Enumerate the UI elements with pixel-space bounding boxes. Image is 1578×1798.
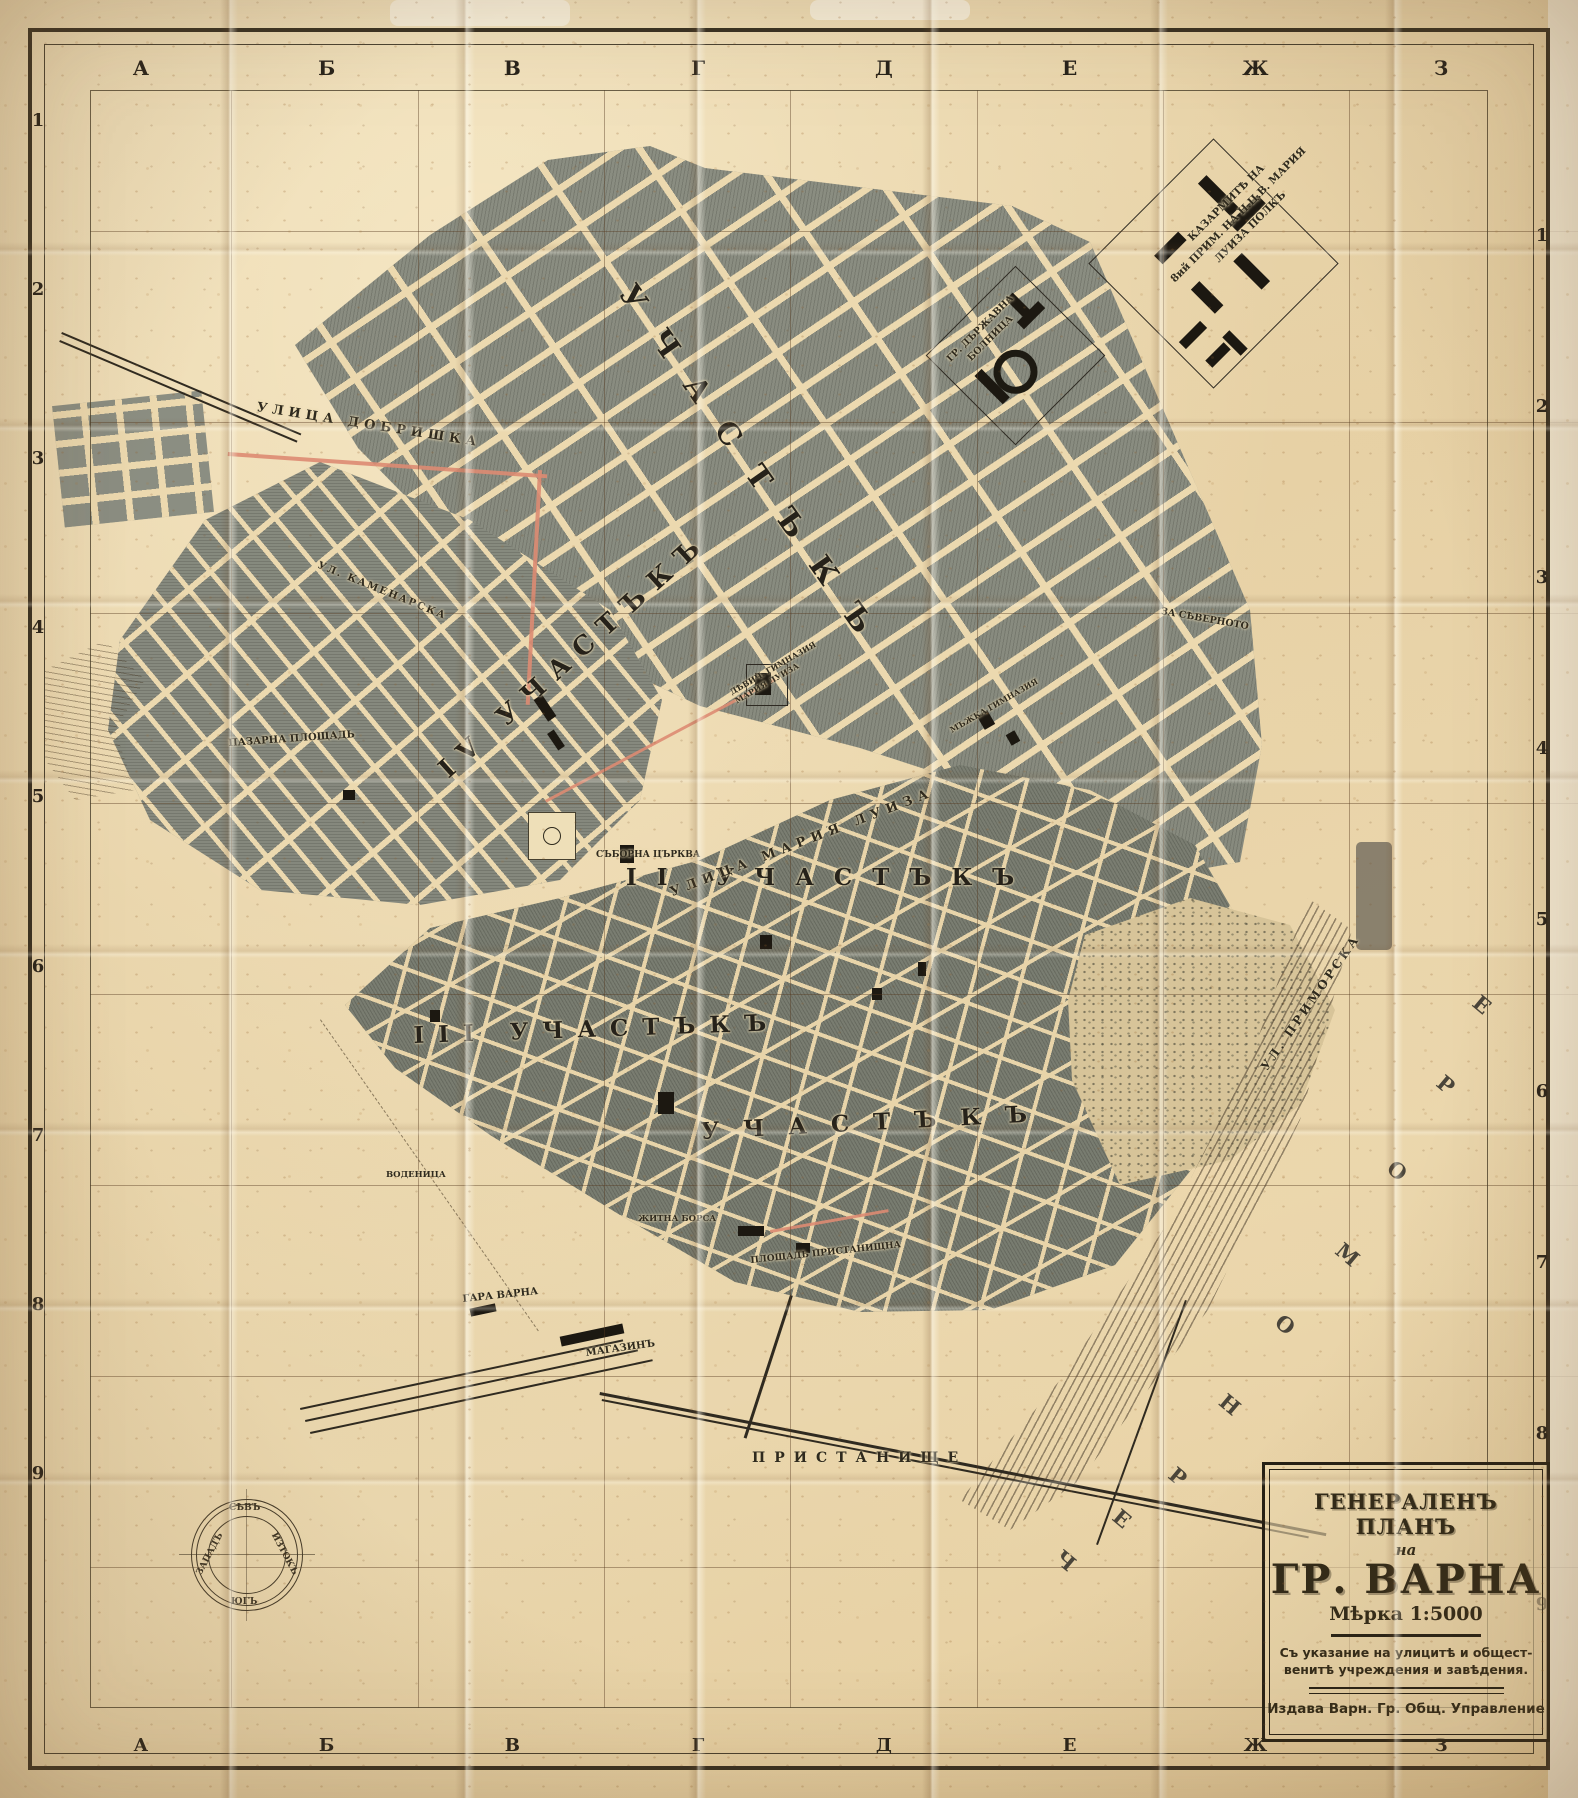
- grid-number-left-9: 9: [24, 1389, 52, 1558]
- grid-line: [90, 994, 1578, 995]
- cartouche-scale: Мѣрка 1:5000: [1265, 1603, 1547, 1625]
- grid-line: [90, 803, 1578, 804]
- grid-number-left-2: 2: [24, 205, 52, 374]
- grid-letters-top: А Б В Г Д Е Ж З: [48, 48, 1534, 88]
- building-block-4: [760, 935, 772, 949]
- grid-letter-bottom-v: В: [420, 1728, 606, 1762]
- grid-letter-bottom-a: А: [48, 1728, 234, 1762]
- paper-right-backing: [1548, 0, 1578, 1798]
- paper-tear-patch: [1356, 842, 1392, 950]
- grid-letter-top-g: Г: [605, 48, 791, 88]
- compass-north-label: СѢВЪ: [229, 1503, 260, 1513]
- sea-letter-n: Н: [1214, 1389, 1245, 1421]
- paper-edge-tear-2: [810, 0, 970, 20]
- compass-inner-ring: [208, 1516, 286, 1594]
- varna-general-plan-map: УЧАСТЪКЪ II УЧАСТЪКЪ III УЧАСТЪКЪ УЧАСТЪ…: [0, 0, 1578, 1798]
- grid-line: [231, 90, 232, 1708]
- grid-number-left-6: 6: [24, 882, 52, 1051]
- sea-letter-o1: О: [1270, 1309, 1300, 1340]
- grid-line: [604, 90, 605, 1708]
- grid-line: [1163, 90, 1164, 1708]
- grid-line: [90, 1376, 1578, 1377]
- harbor-breakwater-south-inner: [602, 1399, 1309, 1538]
- grid-letter-bottom-g: Г: [605, 1728, 791, 1762]
- grid-letter-bottom-d: Д: [791, 1728, 977, 1762]
- label-port: ПРИСТАНИЩЕ: [752, 1450, 967, 1466]
- railway-track-2: [305, 1349, 638, 1422]
- grid-line: [90, 1185, 1578, 1186]
- cathedral-square: [528, 812, 576, 860]
- paper-edge-tear-1: [390, 0, 570, 26]
- grid-numbers-left: 1 2 3 4 5 6 7 8 9: [24, 36, 52, 1558]
- grid-letter-bottom-e: Е: [977, 1728, 1163, 1762]
- grid-letter-bottom-b: Б: [234, 1728, 420, 1762]
- grid-number-left-8: 8: [24, 1220, 52, 1389]
- building-block-6: [918, 962, 926, 976]
- building-block-3: [343, 790, 355, 800]
- grid-number-left-7: 7: [24, 1051, 52, 1220]
- grid-letter-top-zh: Ж: [1163, 48, 1349, 88]
- sea-letter-o2: О: [1382, 1155, 1412, 1186]
- label-cathedral: СЪБОРНА ЦЪРКВА: [596, 850, 700, 860]
- grid-letter-top-b: Б: [234, 48, 420, 88]
- grid-letter-top-a: А: [48, 48, 234, 88]
- barracks-building-3: [1233, 253, 1270, 290]
- harbor-pier: [744, 1295, 793, 1439]
- cartouche-publisher: Издава Варн. Гр. Общ. Управление: [1265, 1701, 1547, 1717]
- sea-letter-ch: Ч: [1050, 1545, 1081, 1576]
- sea-letter-m: М: [1331, 1237, 1365, 1271]
- cartouche-rule-double: [1309, 1687, 1504, 1694]
- compass-crosshair-horizontal: [179, 1554, 315, 1555]
- sea-letter-r1: Р: [1164, 1462, 1192, 1491]
- cartouche-subtitle: Съ указание на улицитѣ и общест- венитѣ …: [1265, 1644, 1547, 1679]
- grid-letter-top-v: В: [420, 48, 606, 88]
- grid-line: [90, 231, 1578, 232]
- cartouche-rule-single: [1331, 1634, 1481, 1637]
- grid-letter-top-z: З: [1348, 48, 1534, 88]
- label-grain-exchange: ЖИТНА БОРСА: [638, 1214, 716, 1224]
- grid-number-left-1: 1: [24, 36, 52, 205]
- grid-number-left-3: 3: [24, 374, 52, 543]
- cartouche-title-line1: ГЕНЕРАЛЕНЪ ПЛАНЪ: [1265, 1489, 1547, 1539]
- station-building: [469, 1303, 496, 1316]
- sea-letter-r2: Р: [1432, 1070, 1460, 1099]
- title-cartouche: ГЕНЕРАЛЕНЪ ПЛАНЪ на ГР. ВАРНА Мѣрка 1:50…: [1262, 1462, 1550, 1742]
- grid-letter-top-d: Д: [791, 48, 977, 88]
- grid-line: [418, 90, 419, 1708]
- label-train-station: ГАРА ВАРНА: [462, 1286, 539, 1305]
- compass-south-label: ЮГЪ: [231, 1597, 257, 1607]
- label-mill: ВОДЕНИЦА: [386, 1170, 446, 1180]
- cartouche-title-line3: ГР. ВАРНА: [1265, 1559, 1547, 1601]
- compass-rose: СѢВЪ ЮГЪ ЗАПАДЪ ИЗТОКЪ: [191, 1499, 303, 1611]
- church-building-1: [658, 1092, 674, 1114]
- grain-exchange-building: [738, 1226, 764, 1236]
- northwest-cemetery-grid: [52, 390, 214, 527]
- grid-letter-top-e: Е: [977, 48, 1163, 88]
- round-garden-icon: [543, 827, 561, 845]
- sea-letter-e1: Е: [1108, 1504, 1136, 1533]
